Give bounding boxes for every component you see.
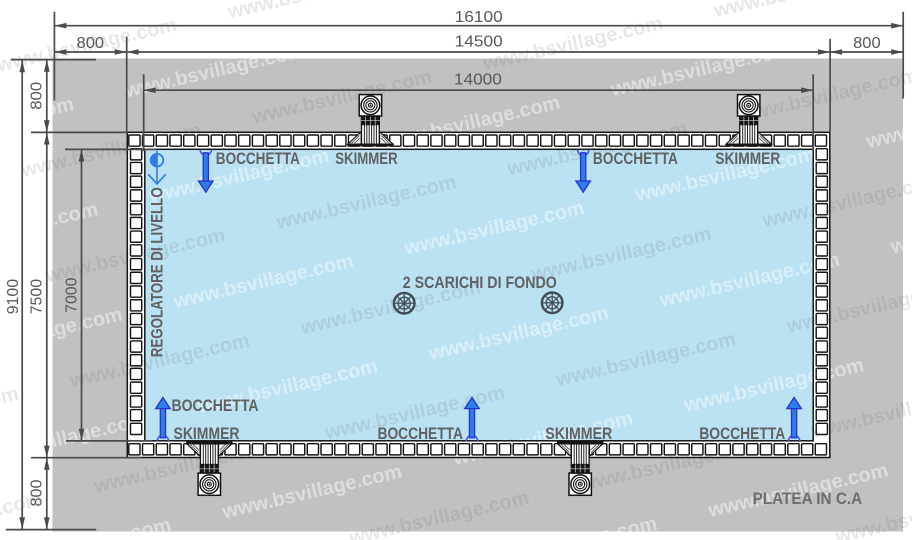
svg-text:PLATEA IN C.A: PLATEA IN C.A <box>753 489 863 508</box>
svg-text:800: 800 <box>28 82 45 110</box>
svg-text:800: 800 <box>28 479 45 506</box>
svg-text:BOCCHETTA: BOCCHETTA <box>216 149 300 168</box>
svg-text:BOCCHETTA: BOCCHETTA <box>378 424 464 443</box>
svg-text:9100: 9100 <box>5 279 22 315</box>
svg-text:800: 800 <box>77 35 105 52</box>
svg-text:7500: 7500 <box>28 279 45 315</box>
svg-text:14000: 14000 <box>454 72 502 89</box>
svg-text:7000: 7000 <box>64 277 81 313</box>
svg-text:2 SCARICHI DI FONDO: 2 SCARICHI DI FONDO <box>403 273 557 292</box>
svg-text:16100: 16100 <box>455 9 503 26</box>
svg-text:SKIMMER: SKIMMER <box>715 149 780 168</box>
svg-text:REGOLATORE DI LIVELLO: REGOLATORE DI LIVELLO <box>147 187 166 357</box>
svg-text:BOCCHETTA: BOCCHETTA <box>593 149 678 168</box>
svg-text:BOCCHETTA: BOCCHETTA <box>172 396 259 415</box>
svg-text:14500: 14500 <box>455 34 503 51</box>
svg-text:SKIMMER: SKIMMER <box>174 424 240 443</box>
svg-text:BOCCHETTA: BOCCHETTA <box>699 424 785 443</box>
svg-text:800: 800 <box>853 35 881 52</box>
svg-text:SKIMMER: SKIMMER <box>335 149 398 168</box>
svg-text:SKIMMER: SKIMMER <box>545 424 612 443</box>
